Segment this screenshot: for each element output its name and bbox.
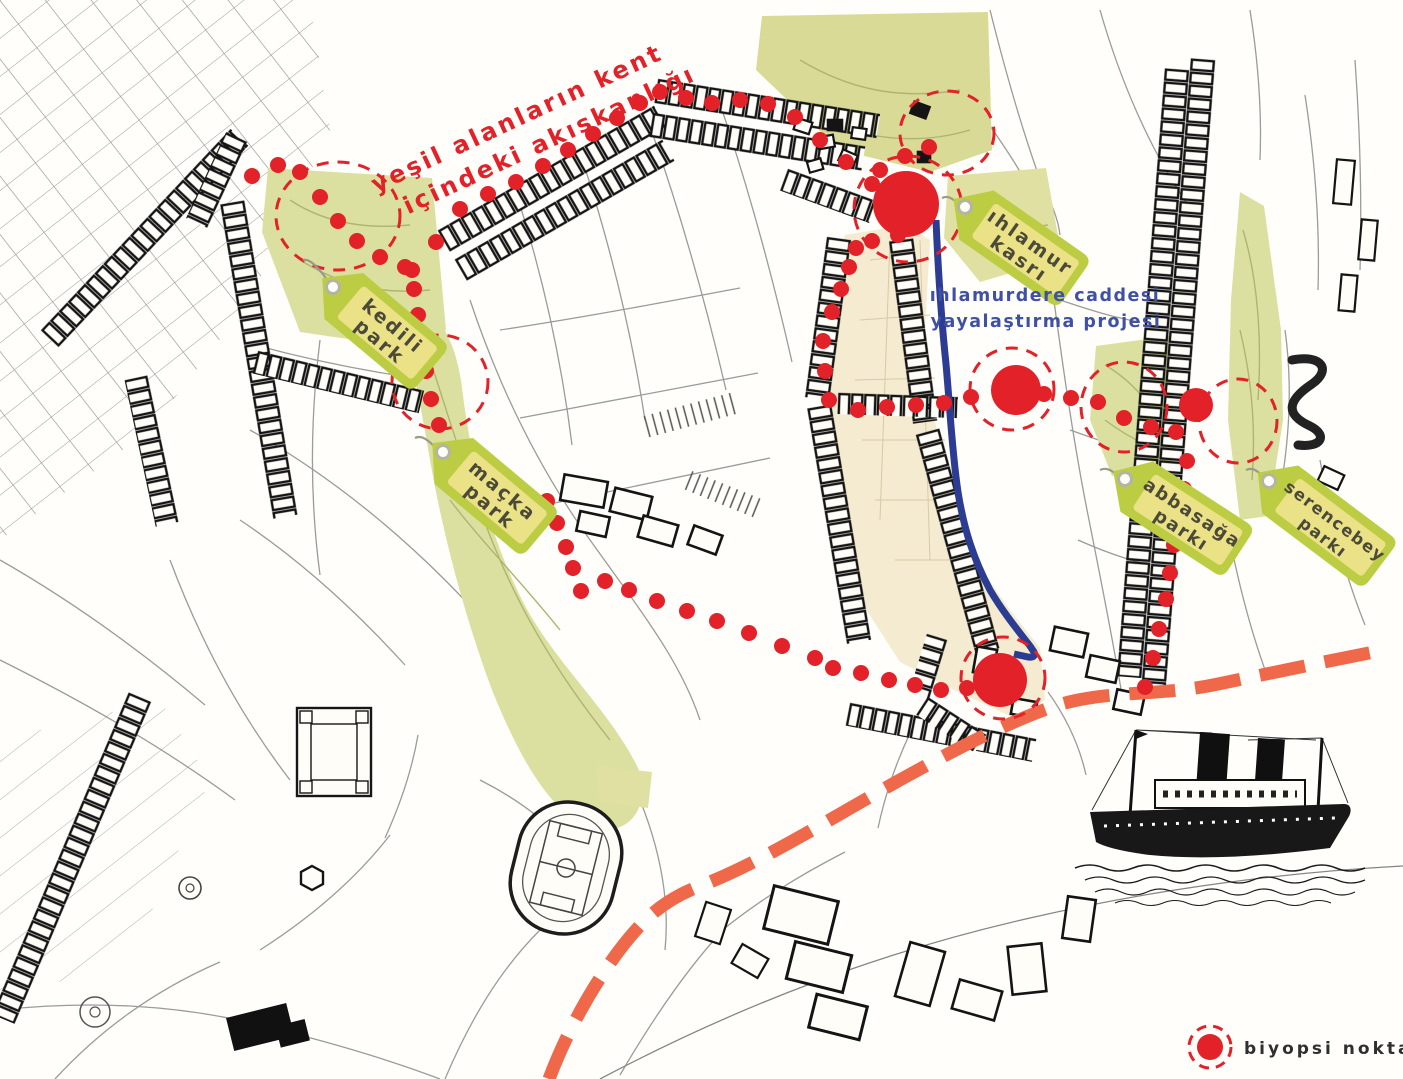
route-dot [838,154,854,170]
biopsy-point [1179,388,1213,422]
route-dot [1151,621,1167,637]
route-dot [921,139,937,155]
map-canvas: kedili park maçka park ıhlamur kasrı abb… [0,0,1403,1079]
route-dot [565,560,581,576]
route-dot [1090,394,1106,410]
route-dot [480,186,496,202]
route-dot [558,539,574,555]
route-dot [1158,591,1174,607]
project-line1: ıhlamurdere caddesi [930,286,1161,306]
route-dot [1179,453,1195,469]
route-dot [850,402,866,418]
route-dot [833,281,849,297]
legend-biopsy-dot [1197,1034,1223,1060]
route-dot [423,391,439,407]
mosque-hexagon [301,866,323,890]
palace-building [297,708,371,796]
route-dot [397,259,413,275]
route-dot [1168,424,1184,440]
route-dot [732,92,748,108]
route-dot [774,638,790,654]
route-dot [621,582,637,598]
park-small-1 [893,24,936,90]
route-dot [787,109,803,125]
route-dot [406,281,422,297]
biopsy-point [873,171,939,237]
route-dot [679,603,695,619]
ship-funnel-2 [1255,738,1285,786]
route-dot [1063,390,1079,406]
route-dot [848,240,864,256]
route-dot [908,397,924,413]
route-dot [428,234,444,250]
route-dot [807,650,823,666]
route-dot [853,665,869,681]
route-dot [1143,419,1159,435]
route-dot [881,672,897,688]
route-dot [760,96,776,112]
route-dot [244,168,260,184]
route-dot [815,333,831,349]
route-dot [704,95,720,111]
route-dot [1162,565,1178,581]
route-dot [573,583,589,599]
route-dot [709,613,725,629]
route-dot [330,213,346,229]
route-dot [312,189,328,205]
route-dot [907,677,923,693]
route-dot [431,417,447,433]
route-dot [1116,410,1132,426]
biopsy-point [991,365,1041,415]
route-dot [936,395,952,411]
ship-funnel-1 [1196,732,1230,786]
route-dot [841,259,857,275]
route-dot [597,573,613,589]
route-dot [959,680,975,696]
route-dot [1145,650,1161,666]
route-dot [270,157,286,173]
route-dot [649,593,665,609]
biopsy-point [973,653,1027,707]
city-map: kedili park maçka park ıhlamur kasrı abb… [0,0,1403,1079]
route-dot [812,132,828,148]
park-small-2 [596,766,652,808]
route-dot [933,682,949,698]
route-dot [452,201,468,217]
route-dot [824,304,840,320]
route-dot [1137,679,1153,695]
route-dot [349,233,365,249]
legend-label: biyopsi noktaları [1244,1039,1403,1059]
route-dot [508,174,524,190]
route-dot [879,399,895,415]
ship-hull [1090,804,1351,857]
route-dot [817,363,833,379]
route-dot [825,660,841,676]
route-dot [741,625,757,641]
route-dot [821,392,837,408]
project-line2: yayalaştırma projesi [931,312,1162,332]
